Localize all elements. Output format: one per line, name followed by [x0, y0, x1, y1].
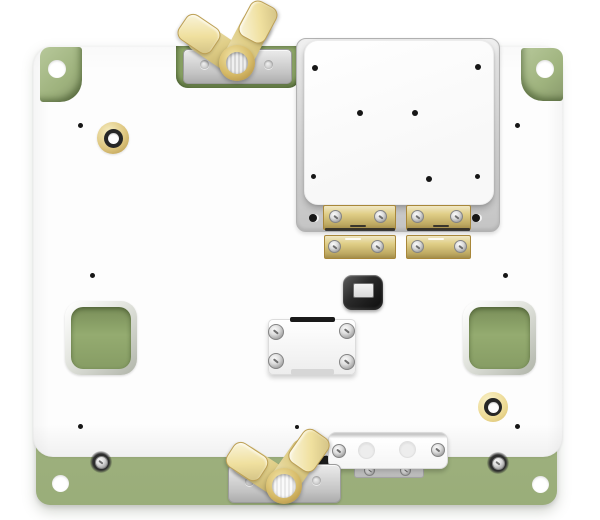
render-canvas [0, 0, 600, 520]
screw-block-top-strip [290, 317, 335, 322]
bushing-top-left [97, 122, 129, 154]
hinge-screw [328, 240, 341, 253]
wing-nut-top-boss-core [226, 52, 248, 74]
raised-plate-hole [426, 176, 432, 182]
base-screw-left [90, 451, 112, 473]
hinge-gap-left [325, 228, 395, 231]
hinge-pin-mark-left [350, 225, 366, 227]
hinge-screw [454, 240, 467, 253]
raised-plate-hole [312, 65, 318, 71]
connector-bar-standoff [399, 441, 416, 458]
raised-plate-hole [412, 110, 418, 116]
plate-hole [90, 273, 95, 278]
cutout-window-right-green [469, 307, 530, 369]
cutout-window-left-green [71, 307, 131, 369]
corner-tab-right-hole [536, 60, 554, 78]
cutout-window-left [65, 301, 137, 375]
screw-block-bottom-notch [291, 369, 334, 375]
raised-plate-hole [475, 174, 480, 179]
hinge-screw [411, 210, 424, 223]
bushing-bottom-right-core [488, 402, 499, 413]
plate-hole [503, 273, 508, 278]
base-screw-right [487, 452, 509, 474]
tray-hole-right [472, 214, 480, 222]
raised-plate-hole [357, 110, 363, 116]
wing-nut-bottom [228, 425, 343, 510]
hinge-screw [411, 240, 424, 253]
hinge-gap-right [407, 228, 470, 231]
hinge-pin-mark-right [433, 225, 449, 227]
hinge-highlight-right [428, 238, 444, 240]
plate-hole [78, 424, 83, 429]
raised-plate [304, 40, 494, 205]
cutout-window-right [463, 301, 536, 375]
base-hole-left [52, 475, 69, 492]
center-socket-window [353, 283, 374, 298]
plate-hole [515, 424, 520, 429]
connector-bar [328, 432, 448, 469]
tray-hole-left [309, 214, 317, 222]
wing-nut-top [175, 5, 300, 85]
block-screw [268, 353, 284, 369]
raised-plate-hole [311, 174, 316, 179]
bushing-bottom-right [478, 392, 508, 422]
corner-tab-left-hole [48, 60, 66, 78]
base-hole-right [532, 476, 549, 493]
plate-hole [78, 123, 83, 128]
block-screw [268, 324, 284, 340]
bushing-top-left-core [108, 133, 119, 144]
hinge-screw [450, 210, 463, 223]
wing-nut-bottom-boss-core [272, 474, 296, 498]
raised-plate-hole [475, 64, 481, 70]
plate-hole [515, 123, 520, 128]
hinge-screw [329, 210, 342, 223]
base-screw-right-head [492, 457, 505, 470]
hinge-screw [371, 240, 384, 253]
center-socket [343, 275, 383, 310]
connector-bar-standoff [358, 442, 375, 459]
corner-tab-left [40, 47, 82, 102]
connector-bar-screw [431, 443, 445, 457]
hinge-screw [374, 210, 387, 223]
block-screw [339, 323, 355, 339]
base-screw-left-head [95, 456, 108, 469]
corner-tab-right [521, 48, 563, 101]
block-screw [339, 354, 355, 370]
hinge-highlight-left [345, 238, 361, 240]
